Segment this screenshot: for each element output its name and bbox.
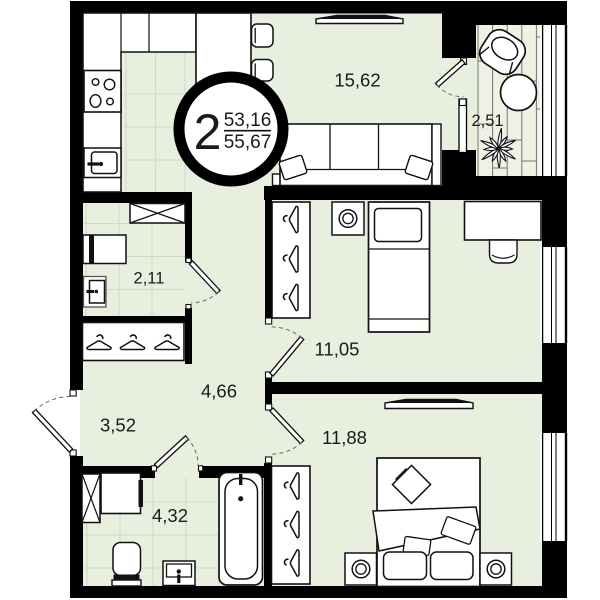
svg-text:2,51: 2,51 [471, 112, 503, 130]
svg-text:2,11: 2,11 [134, 270, 165, 288]
svg-text:55,67: 55,67 [224, 132, 272, 153]
svg-text:4,32: 4,32 [152, 505, 188, 526]
svg-text:15,62: 15,62 [334, 70, 380, 91]
svg-text:11,05: 11,05 [315, 339, 360, 360]
svg-text:11,88: 11,88 [322, 427, 367, 448]
svg-text:4,66: 4,66 [201, 381, 237, 402]
svg-text:53,16: 53,16 [224, 110, 272, 131]
svg-text:2: 2 [194, 104, 222, 160]
svg-text:3,52: 3,52 [100, 415, 136, 436]
